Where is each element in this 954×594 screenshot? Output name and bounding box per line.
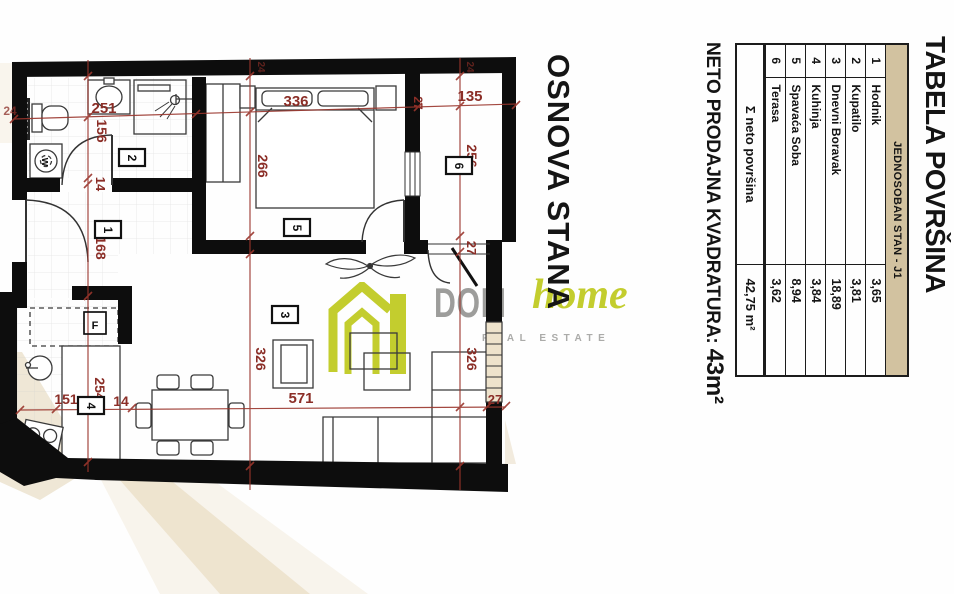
row-num: 3	[826, 44, 846, 77]
floor-plan: 251 336 135 151 14 571 27 24 156 14 168 …	[0, 30, 540, 594]
table-title: TABELA POVRŠINA	[918, 36, 952, 380]
tv-stand	[273, 340, 313, 388]
row-name: Hodnik	[866, 77, 886, 264]
dim-251: 251	[91, 100, 116, 117]
row-num: 4	[806, 44, 826, 77]
wall-left-upper	[12, 63, 27, 200]
wardrobe	[206, 84, 240, 182]
plant-sketch	[326, 255, 415, 278]
row-num: 6	[765, 44, 786, 77]
row-value: 3,81	[846, 264, 866, 376]
net-area-value: 43m²	[701, 349, 728, 404]
table-row: 3 Dnevni Boravak 18,89	[826, 44, 846, 376]
room-number-dnevni-boravak: 3	[278, 312, 292, 319]
room-number-hodnik: 1	[101, 227, 115, 234]
dim-27-terrace-door: 27	[464, 241, 479, 255]
net-area-line: NETO PRODAJNA KVADRATURA: 43m²	[700, 42, 728, 380]
dim-27-terrace-wall: 27	[411, 96, 425, 110]
dim-336: 336	[283, 93, 308, 110]
plan-title: OSNOVA STANA	[543, 54, 574, 310]
row-name: Kuhinja	[806, 77, 826, 264]
row-name: Spavaća Soba	[786, 77, 806, 264]
net-area-label: NETO PRODAJNA KVADRATURA:	[702, 42, 723, 343]
bed	[256, 88, 374, 208]
wall-right-upper	[486, 240, 502, 322]
dim-266: 266	[255, 154, 271, 178]
wall-left-lower	[0, 308, 17, 424]
area-table: JEDNOSOBAN STAN - J1 1 Hodnik 3,65 2 Kup…	[735, 43, 909, 377]
bedroom-terrace-window	[405, 152, 420, 196]
dim-571: 571	[288, 390, 313, 407]
dim-14-hall: 14	[93, 177, 108, 192]
living-room-window	[486, 322, 502, 402]
row-num: 5	[786, 44, 806, 77]
room-number-spavaca-soba: 5	[290, 225, 304, 232]
row-num: 1	[866, 44, 886, 77]
row-value: 8,94	[786, 264, 806, 376]
total-value: 42,75 m²	[736, 264, 765, 376]
dim-24-left: 24	[3, 104, 17, 118]
row-num: 2	[846, 44, 866, 77]
terrace-rail	[502, 60, 516, 242]
nightstand-left	[240, 86, 255, 108]
room-number-kupatilo: 2	[125, 155, 139, 162]
table-header: JEDNOSOBAN STAN - J1	[886, 44, 909, 376]
room-number-kuhinja: 4	[84, 403, 98, 410]
table-row: 2 Kupatilo 3,81	[846, 44, 866, 376]
table-row: 1 Hodnik 3,65	[866, 44, 886, 376]
table-total-row: Σ neto površina 42,75 m²	[736, 44, 765, 376]
wall-kitchen-stub	[118, 300, 132, 344]
total-label: Σ neto površina	[736, 44, 765, 264]
table-row: 6 Terasa 3,62	[765, 44, 786, 376]
dim-24-top-right: 24	[464, 61, 475, 73]
wall-hall-kitchen	[72, 286, 132, 300]
washer-label: w	[39, 157, 51, 167]
row-name: Terasa	[765, 77, 786, 264]
dim-326-left: 326	[253, 347, 269, 371]
wall-hall-right	[192, 193, 206, 254]
dim-27-living: 27	[488, 392, 502, 407]
table-row: 5 Spavaća Soba 8,94	[786, 44, 806, 376]
dim-135: 135	[457, 88, 482, 105]
wall-bathroom-bottom	[112, 178, 196, 192]
dim-24-top-mid: 24	[255, 61, 266, 73]
dining-table	[136, 375, 244, 455]
fridge-label: F	[92, 320, 99, 332]
dim-151: 151	[54, 391, 78, 407]
room-number-terasa: 6	[452, 163, 466, 170]
dim-14-kitchen: 14	[113, 393, 129, 409]
dim-156: 156	[94, 119, 110, 143]
row-value: 3,62	[765, 264, 786, 376]
area-table-block: TABELA POVRŠINA JEDNOSOBAN STAN - J1 1 H…	[700, 26, 952, 380]
row-name: Kupatilo	[846, 77, 866, 264]
terrace-door	[428, 244, 490, 286]
table-header-row: JEDNOSOBAN STAN - J1	[886, 44, 909, 376]
wall-bedroom-bottom	[206, 240, 366, 254]
coffee-table	[350, 333, 410, 390]
dim-168: 168	[93, 236, 109, 260]
wall-right-lower	[486, 402, 502, 468]
wall-bathroom-right	[192, 77, 206, 193]
dim-326-right: 326	[464, 347, 480, 371]
table-row: 4 Kuhinja 3,84	[806, 44, 826, 376]
nightstand-right	[376, 86, 396, 110]
row-value: 3,65	[866, 264, 886, 376]
row-value: 3,84	[806, 264, 826, 376]
row-value: 18,89	[826, 264, 846, 376]
row-name: Dnevni Boravak	[826, 77, 846, 264]
